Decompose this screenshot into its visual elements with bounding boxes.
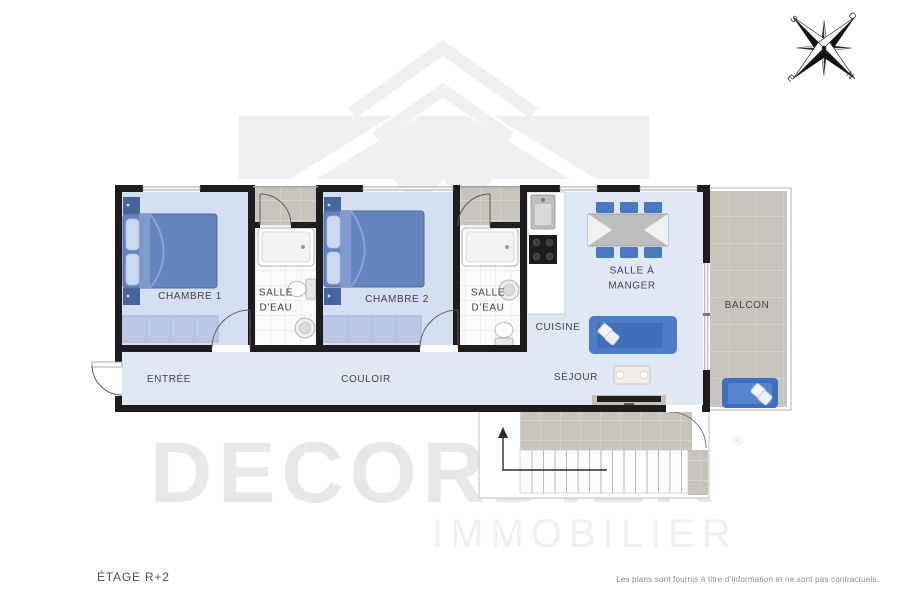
bedroom2-nightstand-bottom [324,288,341,305]
balcony-glass-door [703,263,710,370]
bedroom1-furniture [122,197,218,342]
cooktop [529,235,557,264]
room-label-salle-a-manger: SALLE À MANGER [608,265,656,294]
room-label-entree: ENTRÉE [147,373,191,388]
sink1 [295,318,315,338]
floor-plan-page: DECORDIER ® IMMOBILIER S O E N [0,0,900,600]
room-label-balcon: BALCON [725,299,770,314]
room-label-couloir: COULOIR [341,373,391,388]
kitchen-sink [531,195,555,229]
vestibule1-tiles [253,186,318,225]
room-label-chambre-1: CHAMBRE 1 [158,290,222,305]
bedroom2-bed [324,211,424,287]
bedroom1-nightstand-top [123,197,140,214]
room-label-chambre-2: CHAMBRE 2 [365,293,429,308]
floor-level-label: ÉTAGE R+2 [97,570,170,584]
dining-set [588,202,668,258]
coffee-table [614,366,650,384]
dining-table [588,214,668,246]
room-label-salle-eau-2: SALLE D’EAU [471,287,505,316]
bedroom2-furniture [323,197,424,342]
tv-console [592,395,666,406]
room-label-sejour: SÉJOUR [554,371,598,386]
disclaimer-text: Les plans sont fournis à titre d’informa… [616,575,879,584]
stairwell [479,410,709,498]
bedroom1-bed [123,214,217,288]
room-label-cuisine: CUISINE [536,321,581,336]
balcony-bench [722,378,778,408]
sofa [589,316,677,354]
compass-rose: S O E N [780,4,868,92]
toilet2 [495,323,513,348]
bedroom1-nightstand-bottom [123,288,140,305]
room-label-salle-eau-1: SALLE D’EAU [259,287,293,316]
